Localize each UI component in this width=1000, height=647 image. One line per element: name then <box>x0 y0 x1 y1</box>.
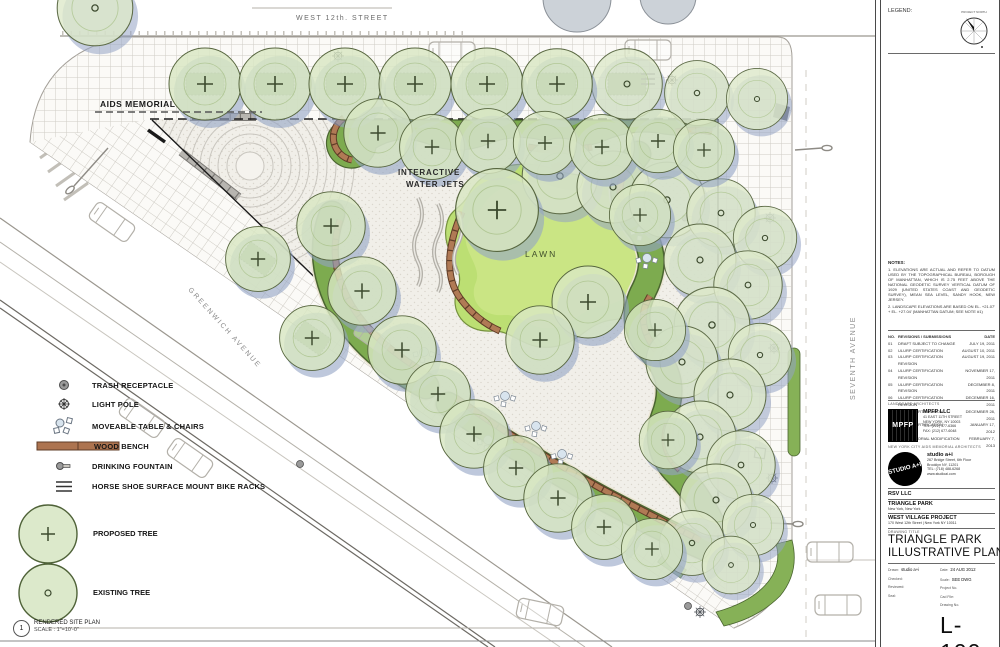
mpfp-logo: MPFP <box>888 409 918 442</box>
memorial-architects-label: NEW YORK CITY AIDS MEMORIAL ARCHITECTS <box>888 445 995 449</box>
drinking-fountain-icon <box>36 460 92 472</box>
view-number-bubble: 1 <box>13 620 30 637</box>
reviewed-label: Reviewed: <box>888 585 904 589</box>
svg-text:PROJECT NORTH: PROJECT NORTH <box>961 10 986 14</box>
drawing-title-line1: TRIANGLE PARK <box>888 534 995 547</box>
date-label: Date: <box>940 568 948 572</box>
title-block: LEGEND: PROJECT NORTH NOTES: 1. ELEVATIO… <box>875 0 1000 647</box>
scale-value: SEE DWG <box>952 577 972 582</box>
legend-title-label: LEGEND: <box>888 8 912 52</box>
legend-row-tables: MOVEABLE TABLE & CHAIRS <box>36 415 204 437</box>
notes-title: NOTES: <box>888 260 995 265</box>
legend-label: TRASH RECEPTACLE <box>92 381 173 390</box>
project2-sub: 170 West 12th Street | New York NY 10011 <box>888 521 995 525</box>
notes-section: NOTES: 1. ELEVATIONS ARE ACTUAL AND REFE… <box>888 260 995 314</box>
client-name: RSV LLC <box>888 491 995 497</box>
bike-racks-icon <box>36 479 92 493</box>
seal-label: Seal: <box>888 594 896 598</box>
legend-row-fountain: DRINKING FOUNTAIN <box>36 460 173 472</box>
studio-web: www.studioai.com <box>927 472 971 477</box>
revision-row: 03ULURP CERTIFICATION REVISIONAUGUST 19,… <box>888 354 995 368</box>
rev-header-date: DATE <box>961 334 995 341</box>
table-chairs-icon <box>36 415 92 437</box>
legend-row-bench: WOOD BENCH <box>36 441 149 451</box>
legend-label: MOVEABLE TABLE & CHAIRS <box>92 422 204 431</box>
landscape-architects-label: LANDSCAPE ARCHITECTS <box>888 402 995 406</box>
view-scale: SCALE : 1"=10'-0" <box>34 627 100 633</box>
trash-receptacle-icon <box>36 378 92 392</box>
drawing-title-line2: ILLUSTRATIVE PLAN <box>888 547 995 560</box>
project1-sub: New York, New York <box>888 507 995 511</box>
legend-label: DRINKING FOUNTAIN <box>92 462 173 471</box>
note-1: 1. ELEVATIONS ARE ACTUAL AND REFER TO DA… <box>888 267 995 302</box>
view-title: RENDERED SITE PLAN <box>34 620 100 627</box>
rev-header-desc: REVISIONS / SUBMISSIONS <box>898 334 961 341</box>
mpfp-firm-block: MPFP MPFP LLC 41 EAST 11TH STREET NEW YO… <box>888 409 995 442</box>
legend-label: LIGHT POLE <box>92 400 139 409</box>
legend-label: HORSE SHOE SURFACE MOUNT BIKE RACKS <box>92 482 265 491</box>
legend-row-bike-racks: HORSE SHOE SURFACE MOUNT BIKE RACKS <box>36 479 265 493</box>
note-2: 2. LANDSCAPE ELEVATIONS ARE BASED ON EL.… <box>888 304 995 314</box>
scale-label: Scale: <box>940 578 950 582</box>
legend-label: WOOD BENCH <box>94 442 149 451</box>
legend-row-trash: TRASH RECEPTACLE <box>36 378 173 392</box>
legend-label-existing-tree: EXISTING TREE <box>93 588 150 597</box>
drawing-sheet: WEST 12th. STREET GREENWICH AVENUE SEVEN… <box>0 0 1000 647</box>
date-value: 24 AUG 2012 <box>950 567 975 572</box>
cad-file-label: Cad File: <box>940 595 954 599</box>
studio-ai-logo: STUDIO A+I <box>884 448 925 489</box>
sheet-info-fields: Drawn:studio a+i Checked: Reviewed: Seal… <box>888 567 995 647</box>
legend-row-light-pole: LIGHT POLE <box>36 397 139 411</box>
mpfp-addr1: 41 EAST 11TH STREET <box>923 415 962 420</box>
drawn-label: Drawn: <box>888 568 899 572</box>
drawn-value: studio a+i <box>901 567 919 572</box>
project-no-label: Project No. <box>940 586 957 590</box>
mpfp-fax: FAX: (212) 677-6048 <box>923 429 962 434</box>
drawing-no-label: Drawing No. <box>940 603 959 607</box>
plan-legend: TRASH RECEPTACLE LIGHT POLE MOVEABLE TAB… <box>0 0 875 647</box>
existing-tree-symbol <box>15 560 81 626</box>
revision-row: 02ULURP CERTIFICATIONAUGUST 10, 2011 <box>888 348 995 355</box>
revision-row: 01DRAFT SUBJECT TO CHANGEJULY 19, 2011 <box>888 341 995 348</box>
rev-header-no: NO. <box>888 334 898 341</box>
sheet-number: L-100 <box>940 612 995 647</box>
revision-row: 04ULURP CERTIFICATION REVISIONNOVEMBER 1… <box>888 368 995 382</box>
checked-label: Checked: <box>888 577 903 581</box>
studio-addr1: 267 Bridge Street, 6th Floor <box>927 458 971 463</box>
revision-row: 05ULURP CERTIFICATION REVISIONDECEMBER 8… <box>888 382 995 396</box>
studio-firm-block: STUDIO A+I studio a+i 267 Bridge Street,… <box>888 452 995 486</box>
legend-label-proposed-tree: PROPOSED TREE <box>93 529 158 538</box>
view-title-note: 1 RENDERED SITE PLAN SCALE : 1"=10'-0" <box>13 620 100 637</box>
north-arrow-icon: PROJECT NORTH <box>953 8 995 52</box>
proposed-tree-symbol <box>15 501 81 567</box>
light-pole-icon <box>36 397 92 411</box>
